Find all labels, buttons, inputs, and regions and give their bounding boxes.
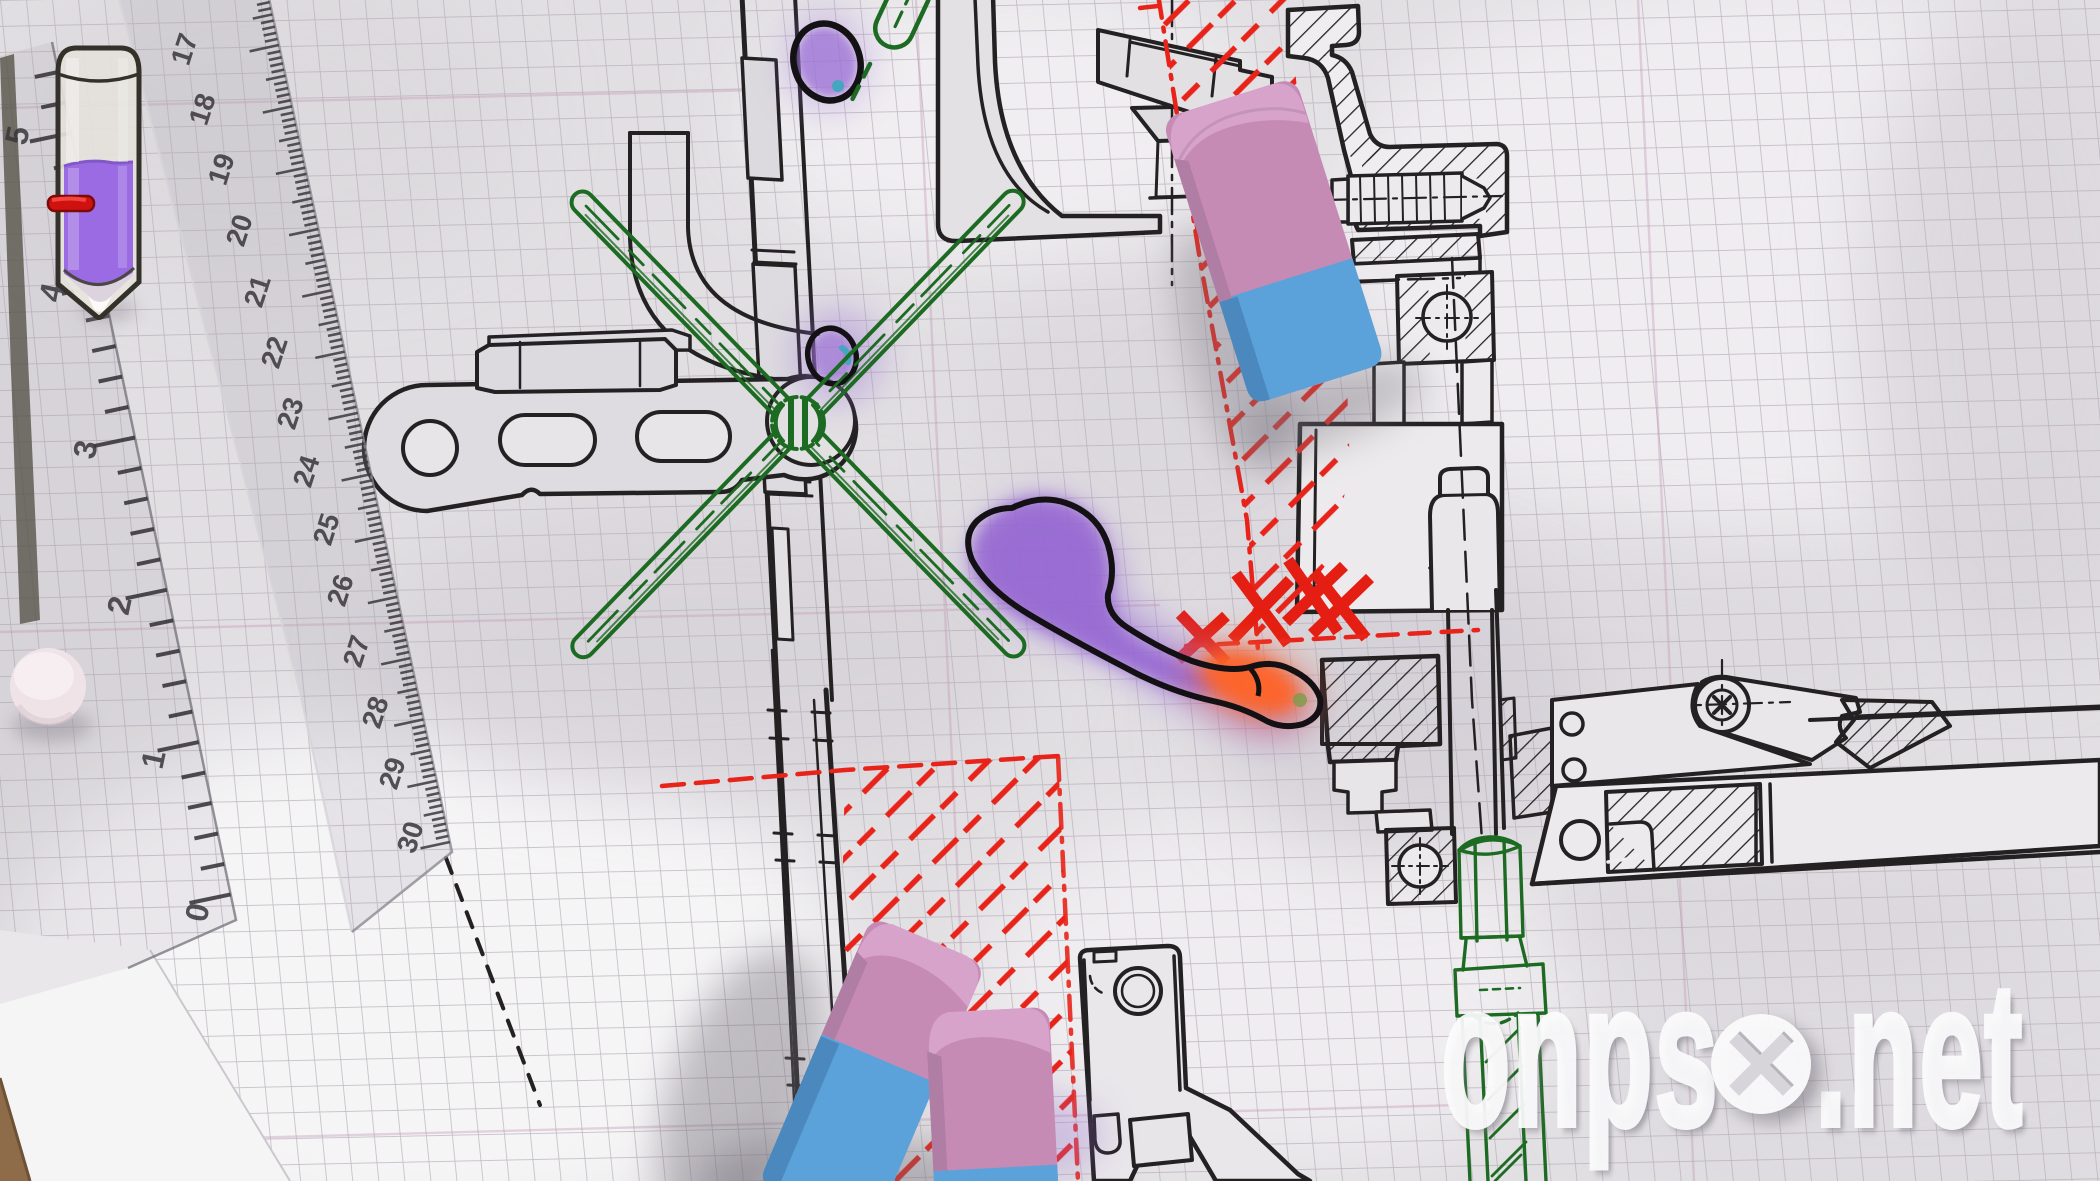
svg-text:.net: .net bbox=[1815, 941, 2024, 1170]
svg-text:onps: onps bbox=[1441, 941, 1719, 1170]
